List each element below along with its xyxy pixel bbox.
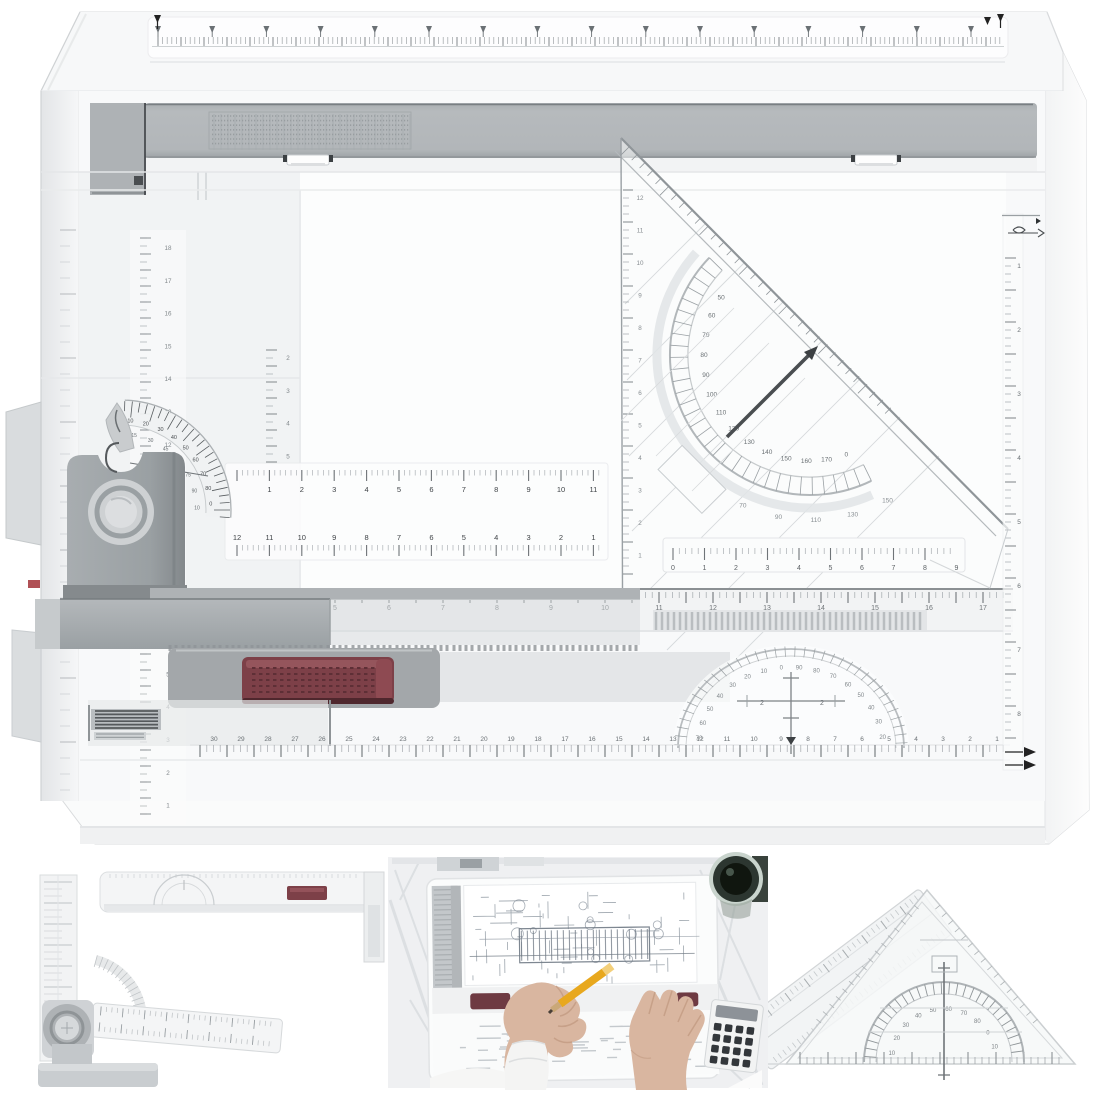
svg-text:6: 6 [638,390,642,397]
svg-text:2: 2 [166,770,170,777]
svg-text:8: 8 [365,533,369,542]
svg-text:30: 30 [157,427,163,433]
svg-text:4: 4 [494,533,498,542]
svg-text:20: 20 [893,1036,900,1042]
svg-text:50: 50 [717,294,725,301]
svg-text:5: 5 [462,533,466,542]
svg-text:10: 10 [888,1051,895,1057]
svg-text:1: 1 [1017,263,1021,270]
svg-text:9: 9 [527,485,531,494]
svg-text:20: 20 [879,735,886,741]
svg-text:2: 2 [760,700,764,707]
svg-text:30: 30 [875,720,882,726]
svg-text:130: 130 [847,511,858,518]
svg-text:130: 130 [744,439,755,446]
svg-text:40: 40 [171,435,177,441]
svg-text:9: 9 [332,533,336,542]
svg-text:8: 8 [1017,711,1021,718]
svg-text:40: 40 [868,706,875,712]
svg-text:5: 5 [286,453,290,460]
svg-text:80: 80 [700,352,708,359]
svg-text:50: 50 [183,446,189,452]
svg-text:2: 2 [638,520,642,527]
svg-text:27: 27 [291,736,299,743]
svg-text:2: 2 [300,485,304,494]
svg-text:160: 160 [801,458,812,465]
svg-text:22: 22 [426,736,434,743]
svg-text:23: 23 [399,736,407,743]
svg-text:30: 30 [729,683,736,689]
svg-text:1: 1 [638,553,642,560]
svg-text:60: 60 [193,458,199,464]
svg-text:8: 8 [923,565,927,572]
svg-text:10: 10 [636,260,644,267]
svg-text:11: 11 [637,228,644,235]
svg-text:3: 3 [1017,391,1021,398]
svg-text:2: 2 [820,700,824,707]
svg-text:7: 7 [833,736,837,743]
svg-text:8: 8 [494,485,498,494]
svg-text:0: 0 [671,565,675,572]
svg-text:110: 110 [716,410,727,417]
svg-text:0: 0 [844,452,848,459]
svg-text:7: 7 [892,565,896,572]
svg-text:12: 12 [233,533,241,542]
svg-text:17: 17 [979,605,987,612]
svg-text:90: 90 [796,666,803,672]
svg-text:70: 70 [739,503,747,510]
svg-text:29: 29 [237,736,245,743]
svg-text:26: 26 [318,736,326,743]
svg-text:25: 25 [345,736,353,743]
svg-text:11: 11 [590,485,598,494]
svg-text:3: 3 [286,388,290,395]
svg-text:9: 9 [638,293,642,300]
svg-text:90: 90 [192,488,198,494]
svg-text:170: 170 [821,457,832,464]
svg-text:10: 10 [750,736,758,743]
svg-text:4: 4 [286,421,290,428]
svg-text:90: 90 [702,372,710,379]
svg-text:1: 1 [267,485,271,494]
svg-text:16: 16 [164,311,172,318]
svg-text:7: 7 [1017,647,1021,654]
svg-text:5: 5 [887,736,891,743]
svg-text:12: 12 [696,736,704,743]
svg-text:2: 2 [559,533,563,542]
svg-text:19: 19 [507,736,515,743]
svg-text:140: 140 [761,449,772,456]
svg-text:40: 40 [915,1014,922,1020]
svg-text:6: 6 [429,485,433,494]
svg-text:60: 60 [708,312,716,319]
svg-text:14: 14 [642,736,650,743]
svg-text:10: 10 [991,1045,998,1051]
svg-text:70: 70 [961,1011,968,1017]
svg-text:4: 4 [797,565,801,572]
svg-text:50: 50 [858,693,865,699]
svg-text:150: 150 [882,498,893,505]
svg-text:10: 10 [298,533,306,542]
svg-text:70: 70 [830,674,837,680]
svg-text:30: 30 [903,1023,910,1029]
svg-text:50: 50 [930,1008,937,1014]
svg-text:1: 1 [703,565,707,572]
svg-text:4: 4 [638,455,642,462]
svg-text:60: 60 [845,682,852,688]
svg-text:4: 4 [914,736,918,743]
svg-text:11: 11 [266,533,274,542]
svg-text:3: 3 [766,565,770,572]
svg-text:4: 4 [365,485,369,494]
svg-text:11: 11 [724,736,731,743]
svg-text:8: 8 [638,325,642,332]
svg-text:5: 5 [829,565,833,572]
svg-text:18: 18 [534,736,542,743]
svg-text:17: 17 [164,278,172,285]
svg-text:3: 3 [332,485,336,494]
svg-text:16: 16 [588,736,596,743]
svg-text:20: 20 [143,422,149,428]
svg-text:150: 150 [781,455,792,462]
svg-text:7: 7 [462,485,466,494]
svg-text:4: 4 [1017,455,1021,462]
svg-text:7: 7 [397,533,401,542]
svg-text:3: 3 [638,488,642,495]
svg-text:17: 17 [561,736,569,743]
svg-text:6: 6 [860,736,864,743]
svg-text:21: 21 [453,736,461,743]
svg-text:2: 2 [968,736,972,743]
svg-text:20: 20 [744,675,751,681]
svg-text:40: 40 [717,694,724,700]
svg-text:10: 10 [194,505,200,511]
svg-text:90: 90 [775,514,783,521]
svg-text:9: 9 [779,736,783,743]
svg-text:14: 14 [164,376,172,383]
svg-text:60: 60 [700,721,707,727]
svg-text:8: 8 [806,736,810,743]
svg-text:5: 5 [397,485,401,494]
svg-text:80: 80 [813,668,820,674]
svg-text:24: 24 [372,736,380,743]
svg-text:110: 110 [811,517,822,524]
svg-text:1: 1 [995,736,999,743]
svg-text:80: 80 [974,1019,981,1025]
svg-text:28: 28 [264,736,272,743]
svg-text:5: 5 [1017,519,1021,526]
svg-text:100: 100 [706,392,717,399]
svg-text:15: 15 [615,736,623,743]
svg-text:0: 0 [209,502,212,508]
svg-text:13: 13 [669,736,677,743]
svg-text:12: 12 [636,195,644,202]
svg-text:3: 3 [527,533,531,542]
svg-text:7: 7 [638,358,642,365]
svg-text:6: 6 [429,533,433,542]
svg-text:50: 50 [707,707,714,713]
svg-text:1: 1 [166,803,170,810]
svg-text:9: 9 [955,565,959,572]
svg-text:30: 30 [210,736,218,743]
svg-text:1: 1 [591,533,595,542]
svg-text:30: 30 [148,438,154,444]
svg-text:45: 45 [163,447,169,453]
svg-text:6: 6 [1017,583,1021,590]
svg-text:2: 2 [286,355,290,362]
svg-text:10: 10 [761,669,768,675]
svg-text:2: 2 [1017,327,1021,334]
svg-text:6: 6 [860,565,864,572]
svg-text:5: 5 [638,423,642,430]
svg-text:3: 3 [941,736,945,743]
svg-text:80: 80 [205,486,211,492]
svg-text:15: 15 [164,343,172,350]
svg-text:20: 20 [480,736,488,743]
svg-text:10: 10 [557,485,565,494]
svg-text:18: 18 [164,245,172,252]
svg-text:2: 2 [734,565,738,572]
